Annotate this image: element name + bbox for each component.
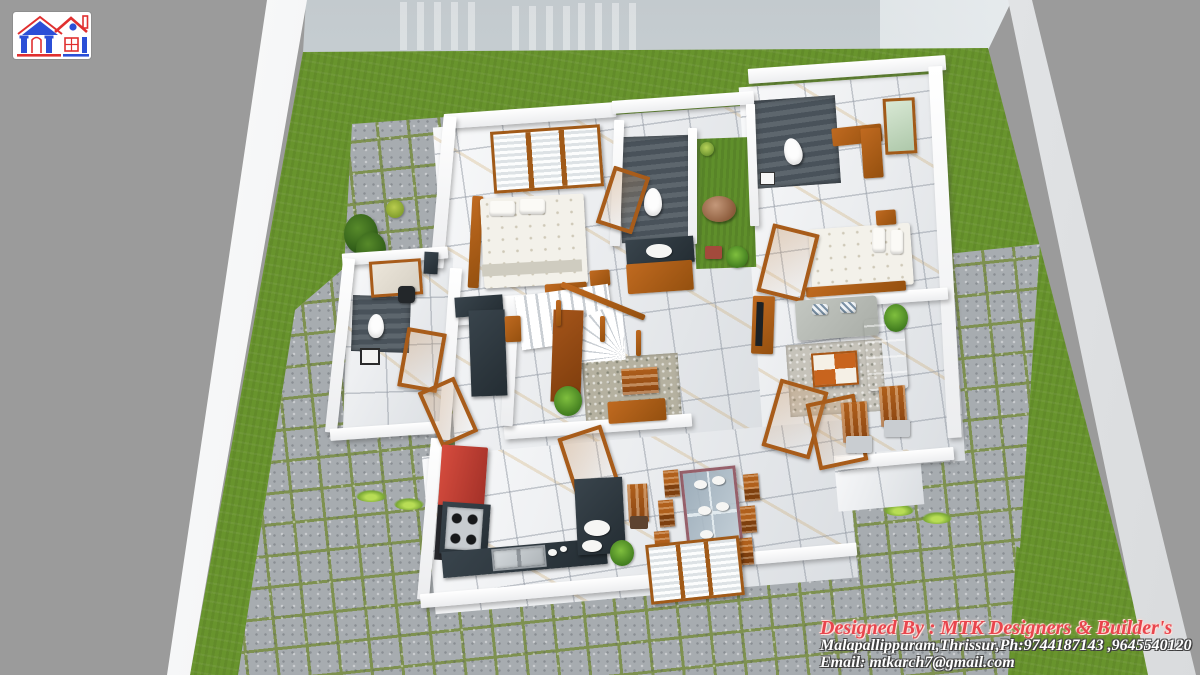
vanity-cabinet — [626, 260, 694, 295]
wash-basin-square — [360, 348, 380, 365]
wash-basin — [646, 244, 672, 258]
round-table — [702, 196, 736, 222]
plate — [584, 520, 610, 536]
floor-plan-render: Designed By : MTK Designers & Builder's … — [0, 0, 1200, 675]
kitchen-chair-seat — [630, 516, 648, 529]
house-logo-icon — [13, 12, 91, 59]
courtyard-plant — [726, 246, 748, 268]
kitchen-tall-unit — [438, 444, 488, 509]
plate — [694, 480, 707, 489]
kitchen-sink — [491, 545, 547, 572]
foyer-bench — [621, 367, 659, 395]
toilet — [368, 314, 385, 339]
wall-reflection-streaks — [578, 3, 640, 50]
plate — [712, 476, 725, 485]
coffee-table — [811, 350, 859, 387]
stool — [505, 316, 522, 343]
wall — [688, 128, 697, 244]
plate — [698, 506, 711, 515]
bedside-table — [876, 209, 897, 225]
pillow — [489, 201, 515, 216]
stair-newel — [600, 316, 605, 342]
pillow — [519, 199, 545, 214]
wardrobe — [860, 127, 883, 178]
console-counter — [469, 309, 508, 396]
wall-reflection-streaks — [512, 6, 570, 50]
stair-plant — [554, 386, 582, 416]
stair-newel — [636, 330, 641, 356]
gas-hob — [445, 507, 484, 551]
dining-chair — [740, 505, 757, 533]
sofa-cushion — [840, 302, 856, 313]
mtk-logo — [13, 12, 91, 59]
dining-chair — [658, 499, 675, 527]
bedroom1-window — [490, 124, 604, 194]
pillow — [890, 230, 903, 254]
armchair-seat — [884, 420, 910, 437]
credit-designed-by: Designed By : MTK Designers & Builder's — [820, 618, 1195, 638]
armchair-seat — [846, 436, 872, 453]
stair-newel — [556, 300, 561, 326]
designer-credits: Designed By : MTK Designers & Builder's … — [820, 618, 1195, 671]
dining-window — [645, 535, 745, 604]
sofa-cushion — [812, 304, 828, 315]
shower-sign — [760, 172, 775, 185]
grass-tuft — [356, 490, 386, 502]
stool — [705, 246, 722, 259]
equipment-box — [423, 252, 438, 275]
pillow — [872, 228, 885, 252]
foyer-table — [607, 398, 666, 424]
bowl — [548, 549, 557, 556]
dining-chair — [663, 469, 680, 497]
credit-address-phone: Malapallippuram,Thrissur,Ph:9744187143 ,… — [820, 638, 1195, 654]
plate — [582, 540, 602, 552]
shrub — [386, 200, 404, 218]
courtyard-plant — [700, 142, 714, 156]
kitchen-plant — [610, 540, 634, 566]
dining-chair — [743, 473, 760, 501]
study-desk — [369, 258, 423, 298]
plate — [716, 502, 729, 511]
toilet — [644, 188, 662, 216]
wall-reflection-streaks — [400, 2, 478, 50]
bowl — [560, 546, 567, 552]
credit-email: Email: mtkarch7@gmail.com — [820, 655, 1195, 671]
wall-mirror — [883, 97, 918, 155]
living-room-plant — [884, 304, 908, 332]
office-chair — [398, 286, 415, 303]
grass-tuft — [922, 512, 952, 524]
grass-tuft — [394, 498, 424, 510]
